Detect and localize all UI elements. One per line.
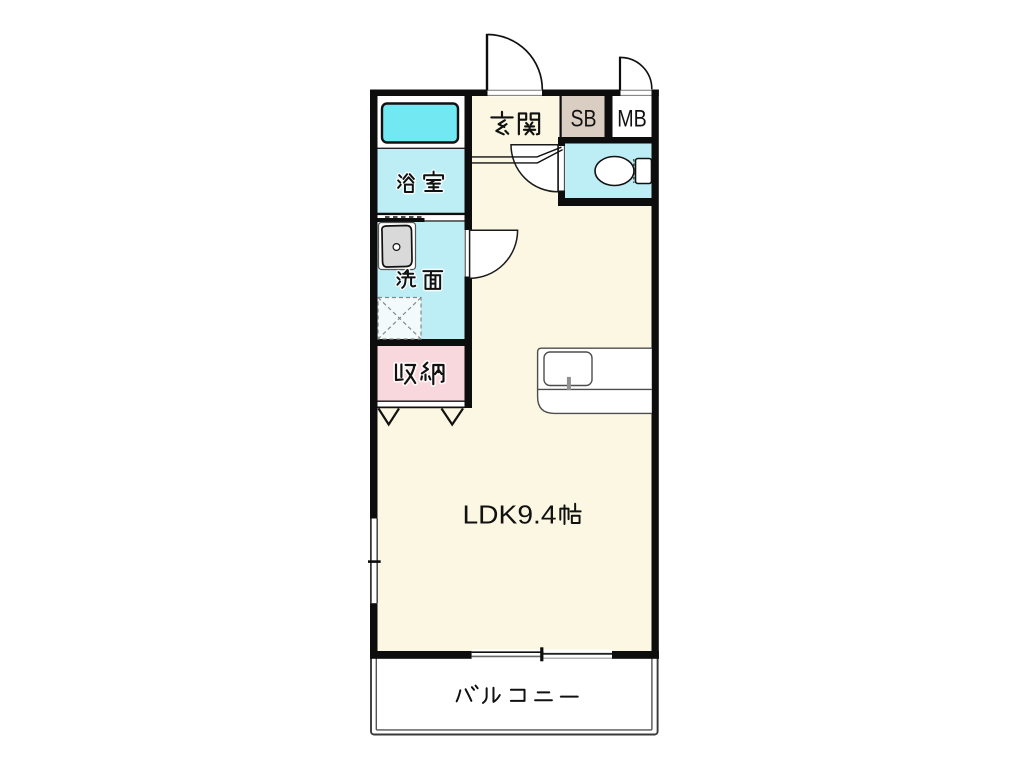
svg-text:SB: SB xyxy=(571,106,597,133)
svg-text:MB: MB xyxy=(617,106,647,133)
svg-text:LDK9.4: LDK9.4 xyxy=(463,500,557,530)
